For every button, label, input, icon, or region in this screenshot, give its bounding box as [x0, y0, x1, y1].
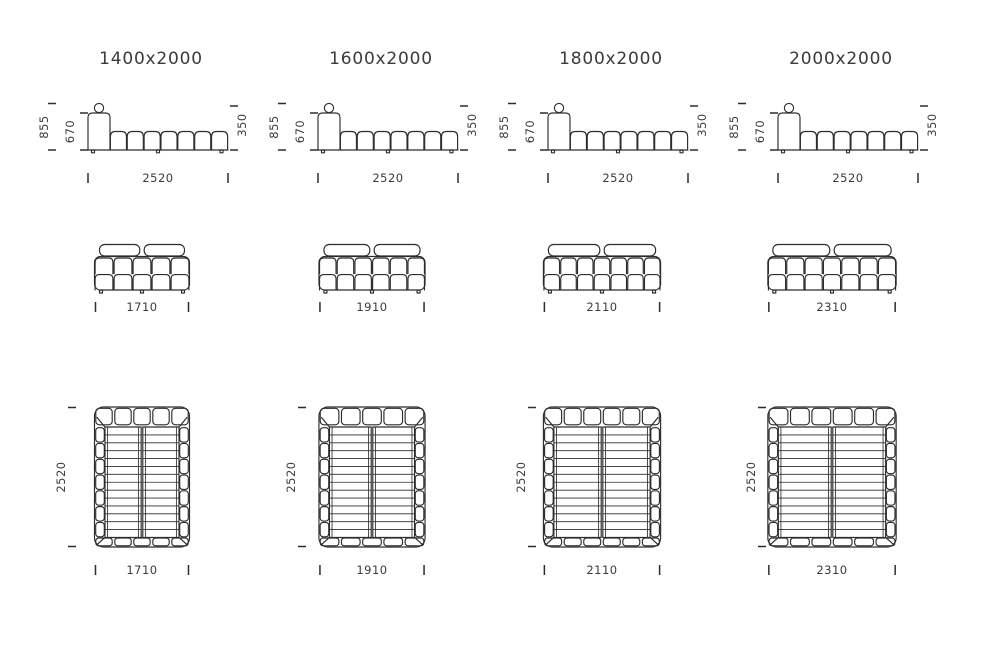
foot [220, 150, 223, 153]
pillow [834, 245, 891, 257]
foot [141, 290, 144, 293]
top-view-art [95, 407, 190, 547]
border-cushion-right [180, 459, 189, 473]
top-view-drawing: 25201910 [266, 390, 496, 600]
cushion-cell [320, 275, 336, 290]
border-cushion-right [886, 443, 895, 457]
border-cushion-bottom [341, 538, 360, 546]
pillow [604, 245, 655, 257]
border-cushion-top [603, 408, 620, 425]
dimension-label: 855 [37, 115, 51, 138]
corner-seam [415, 538, 422, 545]
side-view-drawing: 8556703502520 [726, 95, 956, 195]
dimension-label: 1910 [356, 300, 387, 314]
border-cushion-left [545, 491, 554, 505]
cushion-cell [320, 258, 336, 274]
cushion-cell [544, 275, 560, 290]
border-cushion-right [651, 507, 660, 521]
border-cushion-right [415, 459, 424, 473]
border-cushion-left [320, 507, 329, 521]
border-cushion-top [812, 408, 831, 425]
seat-cushion [374, 132, 390, 151]
corner-seam [322, 538, 329, 545]
border-cushion-left [96, 475, 105, 489]
side-view-art [548, 103, 688, 152]
top-view-drawing: 25201710 [36, 390, 266, 600]
cushion-cell [114, 275, 132, 290]
top-view-art [543, 407, 660, 547]
cushion-cell [544, 258, 560, 274]
border-cushion-top [855, 408, 874, 425]
cushion-cell [787, 275, 804, 290]
border-cushion-top [545, 408, 562, 425]
border-cushion-right [886, 428, 895, 442]
cushion-cell [768, 258, 785, 274]
dimension-label: 350 [235, 113, 249, 136]
border-cushion-bottom [384, 538, 403, 546]
dimension-label: 2520 [284, 461, 298, 492]
border-cushion-right [180, 475, 189, 489]
border-cushion-left [545, 443, 554, 457]
foot [552, 150, 555, 153]
side-view-drawing: 8556703502520 [496, 95, 726, 195]
roll-pillow-icon [554, 103, 563, 112]
foot [322, 150, 325, 153]
pillow [773, 245, 830, 257]
border-cushion-bottom [405, 538, 424, 546]
border-cushion-bottom [855, 538, 874, 546]
dimension-label: 670 [753, 120, 767, 143]
border-cushion-bottom [545, 538, 562, 546]
border-cushion-right [651, 459, 660, 473]
size-variant-column-2000: 2000x2000 8556703502520 2310 25202310 [726, 0, 956, 647]
roll-pillow-icon [784, 103, 793, 112]
border-cushion-right [180, 491, 189, 505]
cushion-cell [561, 275, 577, 290]
border-cushion-left [769, 522, 778, 536]
border-cushion-left [545, 428, 554, 442]
border-cushion-right [180, 443, 189, 457]
border-cushion-left [96, 428, 105, 442]
cushion-cell [390, 258, 406, 274]
seat-cushion [834, 132, 850, 151]
top-view-frame [319, 407, 425, 547]
seat-cushion [178, 132, 194, 151]
border-cushion-right [180, 507, 189, 521]
seat-cushion [195, 132, 211, 151]
border-cushion-top [134, 408, 150, 425]
cushion-cell [611, 258, 627, 274]
border-cushion-right [415, 428, 424, 442]
border-cushion-top [876, 408, 895, 425]
border-cushion-top [833, 408, 852, 425]
front-body [95, 257, 190, 291]
dimension-label: 855 [727, 115, 741, 138]
cushion-cell [152, 275, 170, 290]
foot [548, 290, 551, 293]
border-cushion-bottom [584, 538, 601, 546]
cushion-cell [644, 275, 660, 290]
front-view-art [95, 245, 190, 294]
border-cushion-bottom [876, 538, 895, 546]
cushion-cell [860, 275, 877, 290]
front-view-art [768, 245, 896, 294]
border-cushion-right [651, 443, 660, 457]
cushion-cell [768, 275, 785, 290]
side-view-art [88, 103, 228, 152]
top-view-frame [95, 407, 190, 547]
border-cushion-right [651, 491, 660, 505]
border-cushion-left [320, 428, 329, 442]
dimension-label: 2520 [832, 171, 863, 185]
foot [371, 290, 374, 293]
foot [831, 290, 834, 293]
border-cushion-bottom [812, 538, 831, 546]
size-title: 1600x2000 [266, 49, 496, 69]
foot [847, 150, 850, 153]
border-cushion-right [886, 522, 895, 536]
dimension-label: 2110 [586, 563, 617, 577]
corner-seam [651, 538, 658, 545]
border-cushion-left [545, 522, 554, 536]
border-cushion-left [96, 491, 105, 505]
border-cushion-top [320, 408, 339, 425]
cushion-cell [628, 275, 644, 290]
border-cushion-right [415, 522, 424, 536]
front-view-drawing: 2310 [726, 240, 956, 320]
border-cushion-left [96, 443, 105, 457]
seat-cushion [110, 132, 126, 151]
foot [680, 150, 683, 153]
seat-cushion [408, 132, 424, 151]
border-cushion-right [415, 443, 424, 457]
border-cushion-left [96, 459, 105, 473]
foot [910, 150, 913, 153]
pillow [548, 245, 599, 257]
border-cushion-right [651, 428, 660, 442]
corner-seam [546, 538, 553, 545]
border-cushion-right [180, 428, 189, 442]
cushion-cell [644, 258, 660, 274]
corner-seam [770, 538, 777, 545]
border-cushion-left [769, 443, 778, 457]
border-cushion-left [545, 475, 554, 489]
seat-cushion [144, 132, 160, 151]
border-cushion-left [320, 475, 329, 489]
cushion-cell [390, 275, 406, 290]
dimension-label: 670 [293, 120, 307, 143]
seat-cushion [851, 132, 867, 151]
cushion-cell [95, 258, 113, 274]
roll-pillow-icon [94, 103, 103, 112]
seat-cushion [817, 132, 833, 151]
front-view-art [543, 245, 660, 294]
border-cushion-left [769, 428, 778, 442]
top-dimensions [68, 408, 189, 576]
top-view-drawing: 25202310 [726, 390, 956, 600]
border-cushion-left [96, 522, 105, 536]
cushion-cell [355, 258, 371, 274]
border-cushion-top [363, 408, 382, 425]
border-cushion-bottom [115, 538, 131, 546]
cushion-cell [611, 275, 627, 290]
pillow [100, 245, 140, 257]
dimension-label: 350 [695, 113, 709, 136]
dimension-label: 350 [925, 113, 939, 136]
top-dimensions [298, 408, 424, 576]
seat-cushion [621, 132, 637, 151]
border-cushion-bottom [320, 538, 339, 546]
foot [182, 290, 185, 293]
size-variant-column-1800: 1800x2000 8556703502520 2110 25202110 [496, 0, 726, 647]
seat-cushion [604, 132, 620, 151]
side-view-art [778, 103, 918, 152]
cushion-cell [842, 258, 859, 274]
size-variant-column-1600: 1600x2000 8556703502520 1910 25201910 [266, 0, 496, 647]
headboard [318, 113, 340, 150]
border-cushion-bottom [363, 538, 382, 546]
front-body [319, 257, 425, 291]
front-view-drawing: 2110 [496, 240, 726, 320]
border-cushion-bottom [623, 538, 640, 546]
border-cushion-left [769, 459, 778, 473]
border-cushion-bottom [769, 538, 788, 546]
size-title: 1800x2000 [496, 49, 726, 69]
foot [450, 150, 453, 153]
border-cushion-top [384, 408, 403, 425]
border-cushion-left [320, 443, 329, 457]
border-cushion-left [320, 459, 329, 473]
dimension-label: 2110 [586, 300, 617, 314]
foot [417, 290, 420, 293]
cushion-cell [805, 258, 822, 274]
foot [387, 150, 390, 153]
border-cushion-bottom [642, 538, 659, 546]
border-cushion-right [886, 491, 895, 505]
cushion-cell [171, 275, 189, 290]
seat-cushion [127, 132, 143, 151]
cushion-cell [787, 258, 804, 274]
front-view-drawing: 1910 [266, 240, 496, 320]
seat-cushion [212, 132, 228, 151]
dimension-label: 670 [63, 120, 77, 143]
cushion-cell [408, 258, 424, 274]
cushion-cell [823, 258, 840, 274]
cushion-cell [337, 275, 353, 290]
side-view-art [318, 103, 458, 152]
cushion-cell [878, 258, 895, 274]
cushion-cell [594, 275, 610, 290]
corner-seam [886, 538, 893, 545]
cushion-cell [805, 275, 822, 290]
border-cushion-top [623, 408, 640, 425]
border-cushion-left [545, 507, 554, 521]
border-cushion-left [545, 459, 554, 473]
seat-cushion [425, 132, 441, 151]
dimension-label: 1710 [126, 563, 157, 577]
dimension-label: 1710 [126, 300, 157, 314]
seat-cushion [357, 132, 373, 151]
border-cushion-bottom [153, 538, 169, 546]
seat-cushion [587, 132, 603, 151]
corner-seam [97, 538, 104, 545]
cushion-cell [114, 258, 132, 274]
dimension-label: 2520 [514, 461, 528, 492]
border-cushion-right [886, 475, 895, 489]
foot [324, 290, 327, 293]
border-cushion-top [115, 408, 131, 425]
size-title: 1400x2000 [36, 49, 266, 69]
cushion-cell [133, 258, 151, 274]
foot [601, 290, 604, 293]
side-view-drawing: 8556703502520 [36, 95, 266, 195]
cushion-cell [152, 258, 170, 274]
border-cushion-left [320, 491, 329, 505]
cushion-cell [95, 275, 113, 290]
border-cushion-top [341, 408, 360, 425]
border-cushion-left [96, 507, 105, 521]
dimension-label: 2310 [816, 563, 847, 577]
headboard [778, 113, 800, 150]
cushion-cell [577, 275, 593, 290]
foot [92, 150, 95, 153]
border-cushion-top [642, 408, 659, 425]
seat-cushion [340, 132, 356, 151]
size-variant-column-1400: 1400x2000 8556703502520 1710 25201710 [36, 0, 266, 647]
cushion-cell [561, 258, 577, 274]
border-cushion-top [564, 408, 581, 425]
cushion-cell [373, 258, 389, 274]
dimension-label: 1910 [356, 563, 387, 577]
border-cushion-bottom [833, 538, 852, 546]
dimension-label: 2310 [816, 300, 847, 314]
border-cushion-top [769, 408, 788, 425]
top-view-drawing: 25202110 [496, 390, 726, 600]
cushion-cell [373, 275, 389, 290]
border-cushion-left [769, 475, 778, 489]
border-cushion-right [415, 475, 424, 489]
foot [888, 290, 891, 293]
dimension-label: 855 [497, 115, 511, 138]
border-cushion-bottom [564, 538, 581, 546]
top-view-art [319, 407, 425, 547]
seat-cushion [442, 132, 458, 151]
dimension-label: 350 [465, 113, 479, 136]
border-cushion-right [415, 507, 424, 521]
cushion-cell [408, 275, 424, 290]
dimension-label: 670 [523, 120, 537, 143]
seat-cushion [391, 132, 407, 151]
bed-dimension-diagram: 1400x2000 8556703502520 1710 25201710 16… [0, 0, 983, 647]
border-cushion-right [651, 522, 660, 536]
pillow [374, 245, 420, 257]
foot [100, 290, 103, 293]
cushion-cell [133, 275, 151, 290]
seat-cushion [800, 132, 816, 151]
pillow [324, 245, 370, 257]
border-cushion-top [791, 408, 810, 425]
border-cushion-top [96, 408, 112, 425]
border-cushion-bottom [603, 538, 620, 546]
seat-cushion [885, 132, 901, 151]
border-cushion-bottom [791, 538, 810, 546]
border-cushion-right [886, 507, 895, 521]
seat-cushion [161, 132, 177, 151]
seat-cushion [638, 132, 654, 151]
cushion-cell [577, 258, 593, 274]
cushion-cell [628, 258, 644, 274]
seat-cushion [570, 132, 586, 151]
border-cushion-right [651, 475, 660, 489]
dimension-label: 2520 [142, 171, 173, 185]
pillow [144, 245, 184, 257]
corner-seam [180, 538, 187, 545]
border-cushion-bottom [134, 538, 150, 546]
border-cushion-left [769, 491, 778, 505]
seat-cushion [902, 132, 918, 151]
dimension-label: 855 [267, 115, 281, 138]
border-cushion-left [769, 507, 778, 521]
border-cushion-right [415, 491, 424, 505]
cushion-cell [860, 258, 877, 274]
border-cushion-left [320, 522, 329, 536]
headboard [88, 113, 110, 150]
border-cushion-top [153, 408, 169, 425]
cushion-cell [171, 258, 189, 274]
dimension-label: 2520 [744, 461, 758, 492]
cushion-cell [823, 275, 840, 290]
headboard [548, 113, 570, 150]
seat-cushion [868, 132, 884, 151]
front-view-drawing: 1710 [36, 240, 266, 320]
foot [773, 290, 776, 293]
seat-cushion [672, 132, 688, 151]
cushion-cell [594, 258, 610, 274]
foot [653, 290, 656, 293]
border-cushion-right [180, 522, 189, 536]
dimension-label: 2520 [372, 171, 403, 185]
cushion-cell [842, 275, 859, 290]
border-cushion-top [584, 408, 601, 425]
dimension-label: 2520 [602, 171, 633, 185]
cushion-cell [878, 275, 895, 290]
front-view-art [319, 245, 425, 294]
border-cushion-top [172, 408, 188, 425]
top-view-frame [768, 407, 896, 547]
cushion-cell [355, 275, 371, 290]
seat-cushion [655, 132, 671, 151]
top-view-art [768, 407, 896, 547]
foot [617, 150, 620, 153]
size-title: 2000x2000 [726, 49, 956, 69]
top-view-frame [543, 407, 660, 547]
roll-pillow-icon [324, 103, 333, 112]
foot [782, 150, 785, 153]
foot [157, 150, 160, 153]
side-view-drawing: 8556703502520 [266, 95, 496, 195]
border-cushion-top [405, 408, 424, 425]
cushion-cell [337, 258, 353, 274]
dimension-label: 2520 [54, 461, 68, 492]
border-cushion-right [886, 459, 895, 473]
